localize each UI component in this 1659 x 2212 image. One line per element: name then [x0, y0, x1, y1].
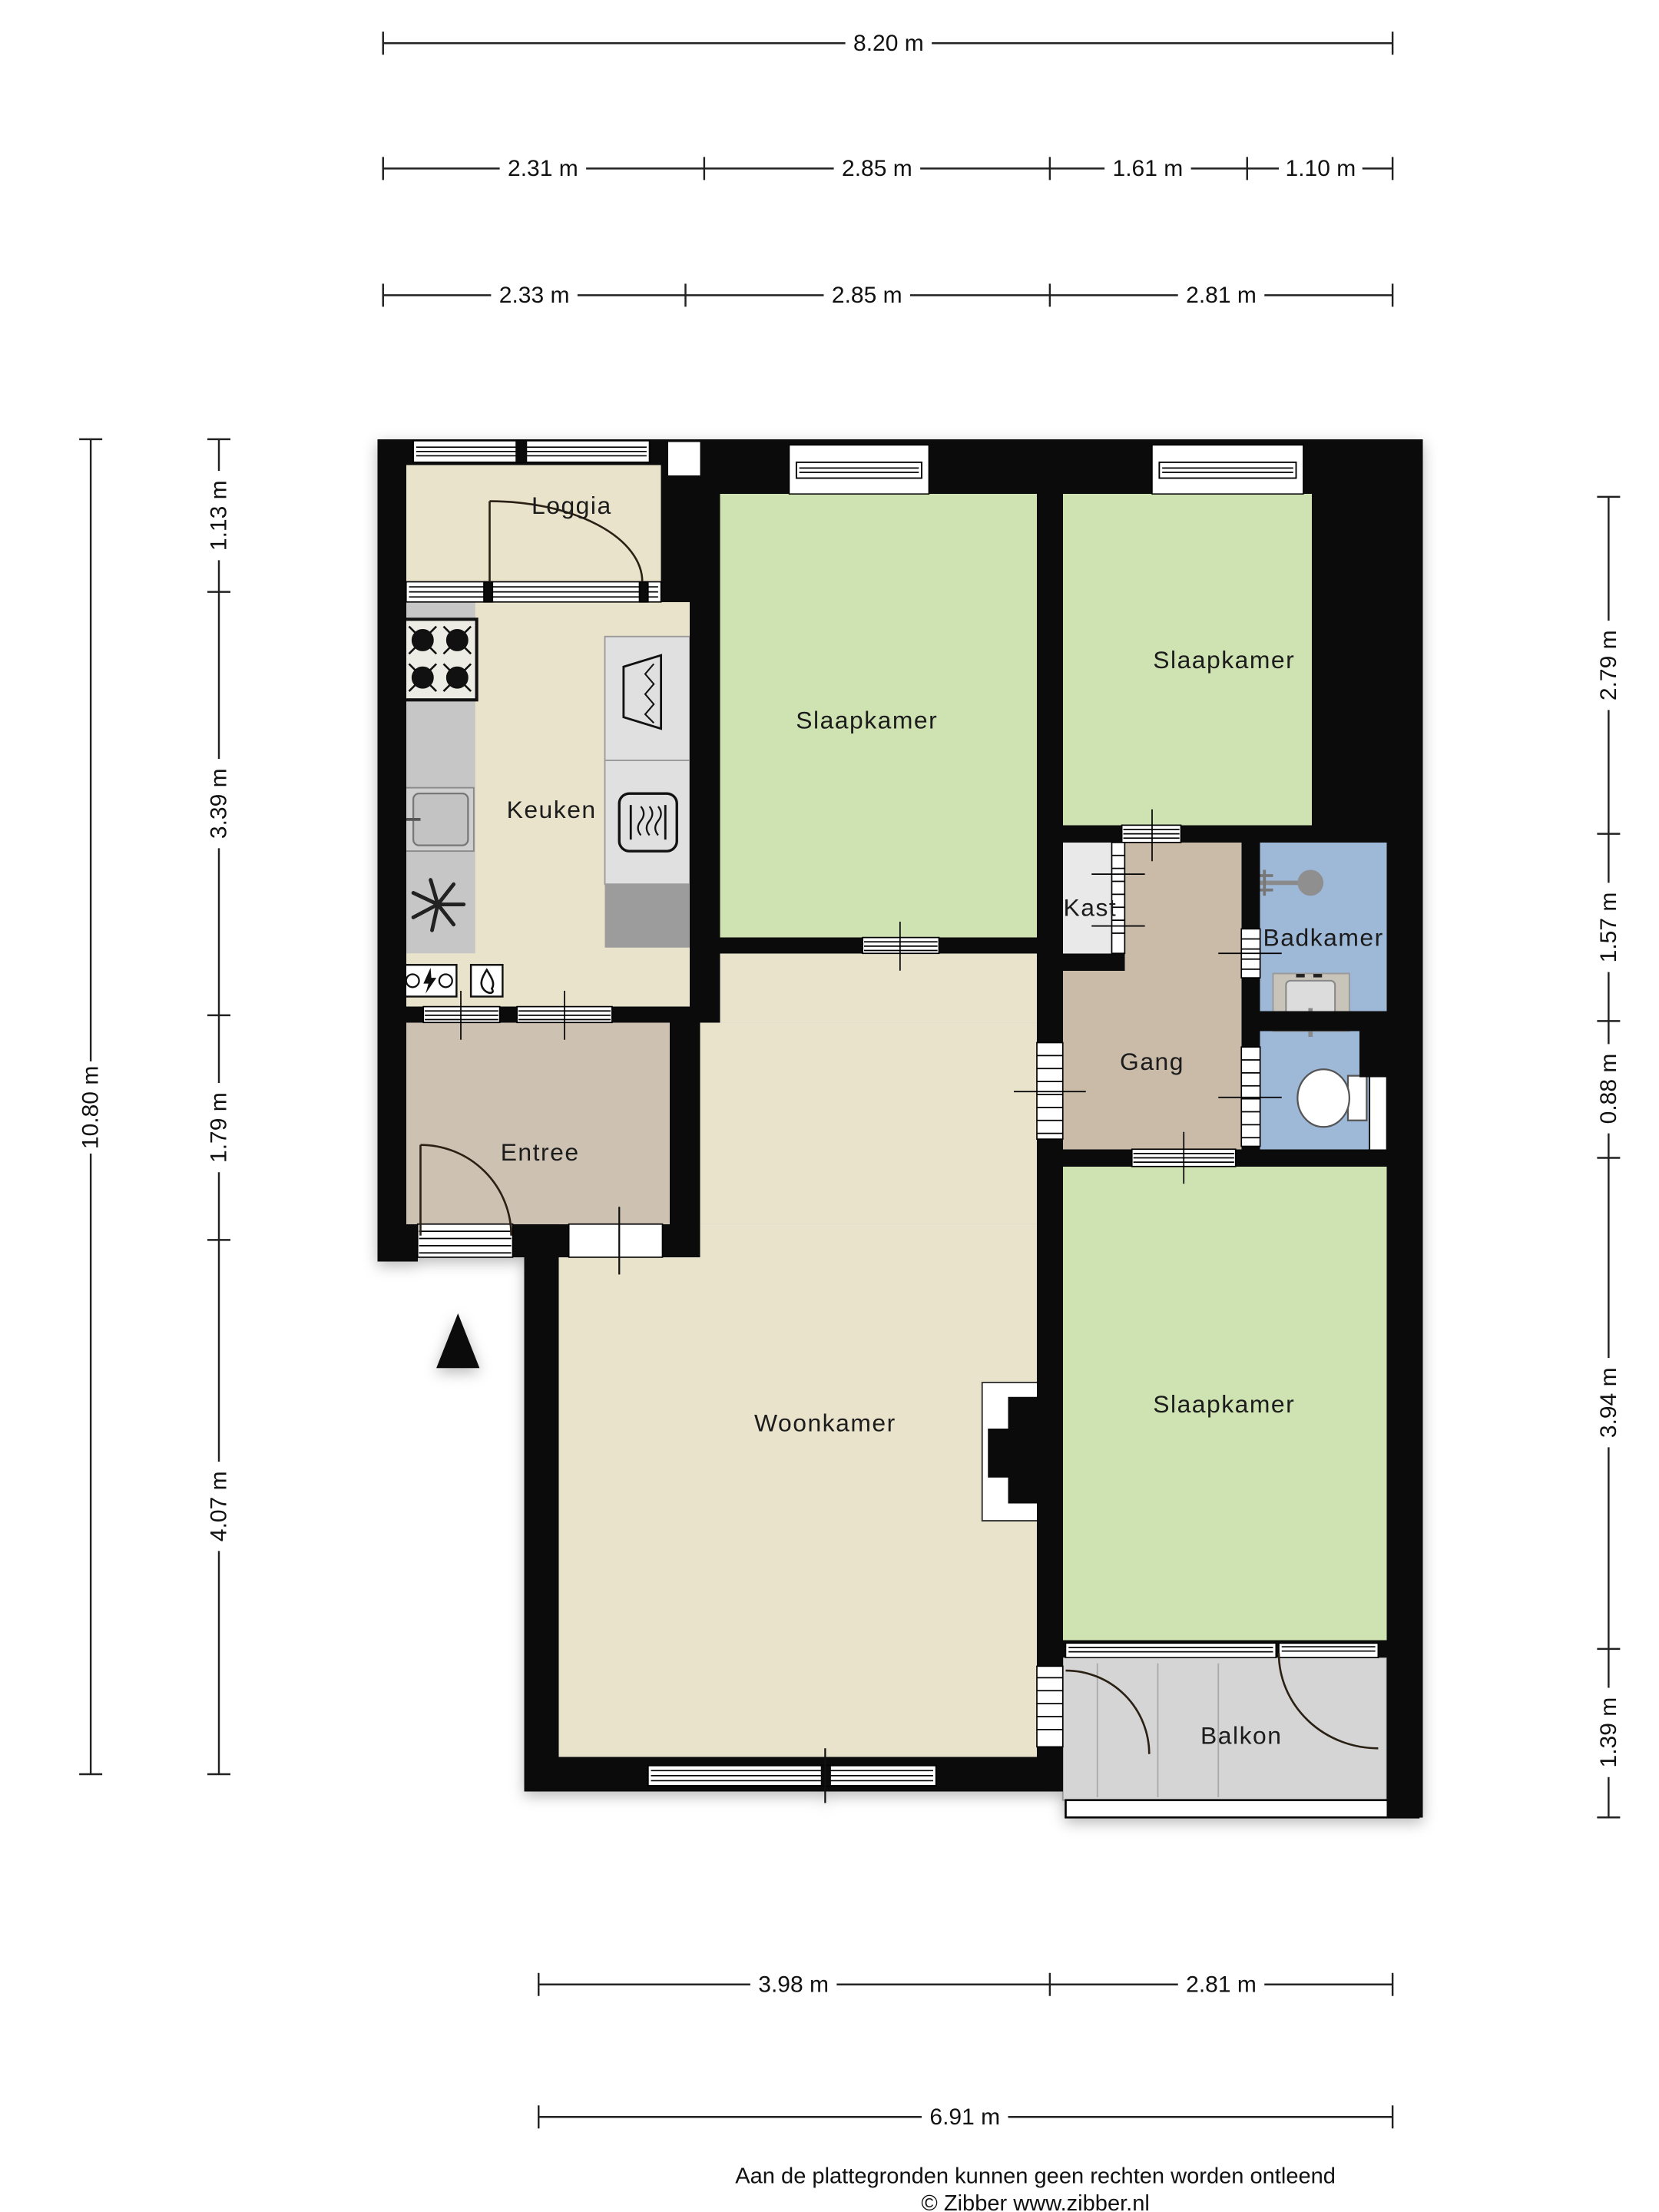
slaapkamer-top-window	[790, 445, 929, 494]
label-gang: Gang	[1120, 1048, 1184, 1075]
dim-top-1-10: 1.10 m	[1286, 156, 1356, 181]
dim-left-1-79: 1.79 m	[207, 1092, 232, 1163]
wall-entree-bottom-a	[377, 1224, 418, 1262]
electric-meter-icon	[402, 965, 456, 996]
slaapkamer-right-window	[1152, 445, 1303, 494]
wall-center-column-c	[1037, 1747, 1063, 1791]
slaapkamer-balkon-door	[1279, 1643, 1378, 1657]
dim-bottom-total: 6.91 m	[929, 2104, 1000, 2130]
dim-top-total: 8.20 m	[853, 31, 924, 56]
dim-top-2-31: 2.31 m	[508, 156, 578, 181]
slaapkamer-bottom-window	[1066, 1643, 1277, 1657]
wall-corner-block	[1312, 439, 1422, 843]
dim-bottom-3-98: 3.98 m	[758, 1972, 829, 1997]
wall-notch	[668, 442, 700, 475]
label-entree: Entree	[501, 1138, 580, 1166]
dim-right-3-94: 3.94 m	[1596, 1367, 1621, 1438]
dim-right-1-57: 1.57 m	[1596, 892, 1621, 963]
label-slaapkamer-bottom: Slaapkamer	[1153, 1390, 1295, 1418]
dim-left-1-13: 1.13 m	[207, 480, 232, 551]
dim-left-total: 10.80 m	[78, 1066, 104, 1149]
fridge-cabinet	[605, 637, 690, 760]
wall-center-column-b	[1037, 1139, 1063, 1666]
wall-woonkamer-left	[525, 1224, 559, 1792]
dim-left-4-07: 4.07 m	[207, 1471, 232, 1541]
dim-right-0-88: 0.88 m	[1596, 1054, 1621, 1124]
dim-top-2-81: 2.81 m	[1186, 283, 1257, 308]
loggia-top-window	[413, 441, 650, 462]
label-loggia: Loggia	[531, 492, 612, 519]
label-slaapkamer-top: Slaapkamer	[796, 707, 938, 734]
woonkamer-balkon-door	[1037, 1666, 1063, 1747]
cabinet-plinth	[605, 884, 690, 948]
footer: Aan de plattegronden kunnen geen rechten…	[735, 2164, 1336, 2212]
dim-top-2-85b: 2.85 m	[832, 283, 902, 308]
label-balkon: Balkon	[1200, 1721, 1282, 1749]
dim-right-1-39: 1.39 m	[1596, 1697, 1621, 1768]
dim-left-3-39: 3.39 m	[207, 768, 232, 839]
loggia-window-wall	[406, 582, 661, 602]
dimensions-bottom: 3.98 m 2.81 m 6.91 m	[538, 1970, 1392, 2131]
wall-left	[377, 439, 406, 1257]
wall-slaapkamer-right-bottom-b	[1181, 825, 1423, 843]
footer-copyright: © Zibber www.zibber.nl	[921, 2191, 1149, 2212]
wall-gang-bottom-a	[1037, 1149, 1132, 1167]
room-woonkamer-c	[559, 1224, 1038, 1757]
front-door-threshold	[418, 1224, 513, 1257]
room-loggia	[406, 456, 661, 590]
floorplan-canvas: 8.20 m 2.31 m 2.85 m 1.61 m 1.10 m 2.33 …	[0, 0, 1659, 2212]
room-entree	[406, 1022, 670, 1224]
wall-slaapkamer-top-bottom-a	[720, 938, 863, 954]
dim-top-2-85: 2.85 m	[842, 156, 912, 181]
kitchen-sink-basin	[413, 793, 468, 846]
balcony-railing	[1066, 1800, 1419, 1818]
dimensions-left: 10.80 m 1.13 m 3.39 m 1.79 m 4.07 m	[76, 439, 233, 1774]
wall-gang-badkamer-a	[1241, 843, 1260, 929]
shower-head-icon	[1297, 870, 1323, 896]
label-badkamer: Badkamer	[1263, 924, 1384, 952]
wall-keuken-bottom-b	[500, 1007, 518, 1023]
water-meter-icon	[471, 965, 502, 996]
entrance-arrow-icon	[436, 1313, 479, 1368]
label-woonkamer: Woonkamer	[754, 1409, 896, 1437]
footer-disclaimer: Aan de plattegronden kunnen geen rechten…	[735, 2164, 1336, 2189]
floorplan: Loggia Keuken Slaapkamer Slaapkamer Kast…	[377, 439, 1422, 1817]
dimensions-right: 2.79 m 1.57 m 0.88 m 3.94 m 1.39 m	[1594, 497, 1624, 1817]
room-woonkamer-b	[700, 1022, 1037, 1224]
dim-top-2-33: 2.33 m	[499, 283, 570, 308]
dim-top-1-61: 1.61 m	[1113, 156, 1184, 181]
label-slaapkamer-right: Slaapkamer	[1153, 646, 1295, 674]
wall-keuken-bottom-a	[377, 1007, 423, 1023]
wall-keuken-bottom-c	[612, 1007, 720, 1023]
wall-keuken-right	[690, 594, 720, 1023]
wall-right	[1387, 843, 1423, 1817]
wall-entree-right	[670, 1007, 700, 1257]
label-keuken: Keuken	[507, 796, 597, 823]
wall-badkamer-step	[1359, 1011, 1387, 1077]
wall-gang-bottom-b	[1236, 1149, 1387, 1167]
label-kast: Kast	[1064, 893, 1118, 921]
dimensions-top: 8.20 m 2.31 m 2.85 m 1.61 m 1.10 m 2.33 …	[383, 29, 1392, 310]
room-woonkamer-a	[720, 946, 1038, 1022]
wall-slaapkamer-right-bottom-a	[1063, 825, 1122, 843]
wall-kast-bottom	[1037, 953, 1124, 971]
toilet-icon	[1297, 1069, 1366, 1127]
dim-bottom-2-81: 2.81 m	[1186, 1972, 1257, 1997]
dim-right-2-79: 2.79 m	[1596, 630, 1621, 700]
